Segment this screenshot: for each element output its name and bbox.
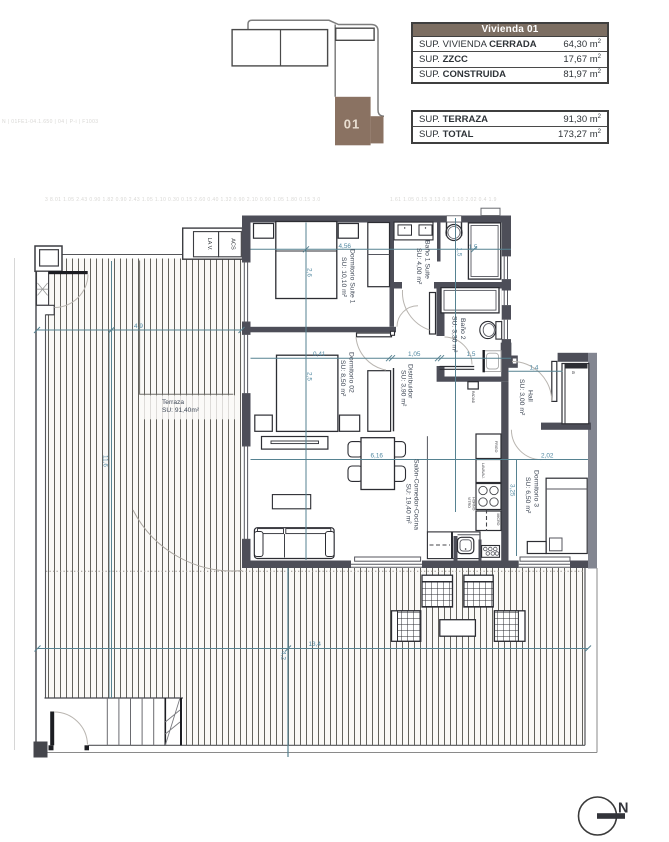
svg-text:SU: 4,00 m²: SU: 4,00 m² xyxy=(415,248,422,285)
svg-text:4,2: 4,2 xyxy=(280,651,287,660)
svg-text:Terraza: Terraza xyxy=(162,399,184,406)
svg-text:2,02: 2,02 xyxy=(541,453,554,460)
svg-text:SU: 3,90 m²: SU: 3,90 m² xyxy=(400,370,407,407)
svg-text:HORNO: HORNO xyxy=(472,497,476,511)
svg-text:Dormitorio Suite 1: Dormitorio Suite 1 xyxy=(349,249,356,304)
svg-text:3,25: 3,25 xyxy=(509,484,516,497)
svg-text:SU: 3,00 m²: SU: 3,00 m² xyxy=(518,379,525,416)
svg-text:01: 01 xyxy=(344,117,360,132)
svg-text:Salón-Comedor-Cocina: Salón-Comedor-Cocina xyxy=(413,459,420,530)
svg-text:N: N xyxy=(618,801,628,817)
svg-text:0,41: 0,41 xyxy=(313,351,326,358)
svg-text:VITRO: VITRO xyxy=(467,497,471,508)
svg-text:SU: 10,10 m²: SU: 10,10 m² xyxy=(340,257,347,298)
svg-text:1,5: 1,5 xyxy=(467,351,476,358)
svg-text:13,4: 13,4 xyxy=(309,641,322,648)
svg-text:4,9: 4,9 xyxy=(134,323,143,330)
svg-text:1,05: 1,05 xyxy=(408,351,421,358)
svg-text:LAVAVAJ.: LAVAVAJ. xyxy=(481,463,485,479)
svg-text:1,5: 1,5 xyxy=(469,244,478,251)
svg-text:ACS: ACS xyxy=(230,238,236,250)
svg-text:a: a xyxy=(570,371,576,374)
svg-text:Baño 1 Suite: Baño 1 Suite xyxy=(424,240,431,279)
svg-text:6,16: 6,16 xyxy=(371,453,384,460)
svg-text:SU: 19,40 m²: SU: 19,40 m² xyxy=(405,484,412,525)
svg-text:2,6: 2,6 xyxy=(306,268,313,277)
svg-text:SU: 6,50 m²: SU: 6,50 m² xyxy=(524,477,531,514)
svg-text:MICRO: MICRO xyxy=(496,514,500,526)
svg-text:Hall: Hall xyxy=(527,390,534,402)
svg-text:Distribuidor: Distribuidor xyxy=(407,364,414,399)
svg-text:SU: 91,40m²: SU: 91,40m² xyxy=(162,407,200,414)
svg-text:LA V.: LA V. xyxy=(206,238,212,251)
svg-text:2,5: 2,5 xyxy=(306,372,313,381)
svg-text:11,6: 11,6 xyxy=(102,455,109,467)
svg-text:Dormitorio 3: Dormitorio 3 xyxy=(533,470,540,507)
svg-text:SU: 3,30 m²: SU: 3,30 m² xyxy=(451,316,458,353)
svg-text:Dormitorio 02: Dormitorio 02 xyxy=(348,352,355,393)
svg-text:Baño 2: Baño 2 xyxy=(459,318,466,340)
svg-text:SU: 8,50 m²: SU: 8,50 m² xyxy=(339,360,346,397)
svg-text:1,4: 1,4 xyxy=(530,365,539,372)
svg-text:FRIGO: FRIGO xyxy=(494,441,498,453)
svg-text:1,5: 1,5 xyxy=(455,248,462,257)
svg-text:RADIAD: RADIAD xyxy=(471,391,475,404)
